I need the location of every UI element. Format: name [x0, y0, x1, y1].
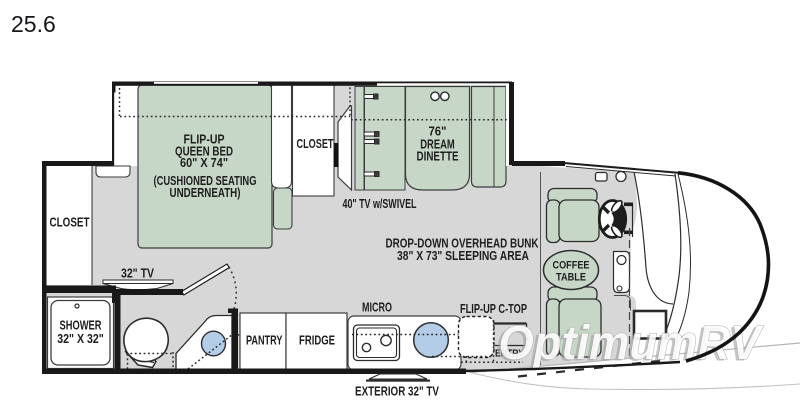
- svg-text:MICRO: MICRO: [362, 301, 392, 315]
- svg-text:FRIDGE: FRIDGE: [299, 333, 335, 347]
- svg-text:PANTRY: PANTRY: [246, 333, 283, 347]
- svg-text:EXTERIOR 32" TV: EXTERIOR 32" TV: [355, 384, 440, 398]
- svg-text:FLIP-UP C-TOP: FLIP-UP C-TOP: [460, 302, 527, 316]
- svg-text:25.6: 25.6: [11, 11, 56, 37]
- svg-text:38" X 73" SLEEPING AREA: 38" X 73" SLEEPING AREA: [397, 249, 529, 263]
- svg-text:32" TV: 32" TV: [121, 266, 155, 280]
- svg-text:60" X 74": 60" X 74": [180, 156, 228, 170]
- svg-text:CLOSET: CLOSET: [50, 215, 90, 229]
- svg-text:SHOWER: SHOWER: [60, 319, 102, 333]
- svg-text:TABLE: TABLE: [556, 272, 586, 284]
- svg-text:COFFEE: COFFEE: [553, 260, 590, 272]
- svg-text:40" TV w/SWIVEL: 40" TV w/SWIVEL: [343, 197, 417, 211]
- svg-text:DINETTE: DINETTE: [417, 150, 459, 164]
- svg-text:32" X 32": 32" X 32": [57, 332, 104, 346]
- svg-text:UNDERNEATH): UNDERNEATH): [170, 186, 241, 200]
- svg-text:CLOSET: CLOSET: [297, 137, 334, 151]
